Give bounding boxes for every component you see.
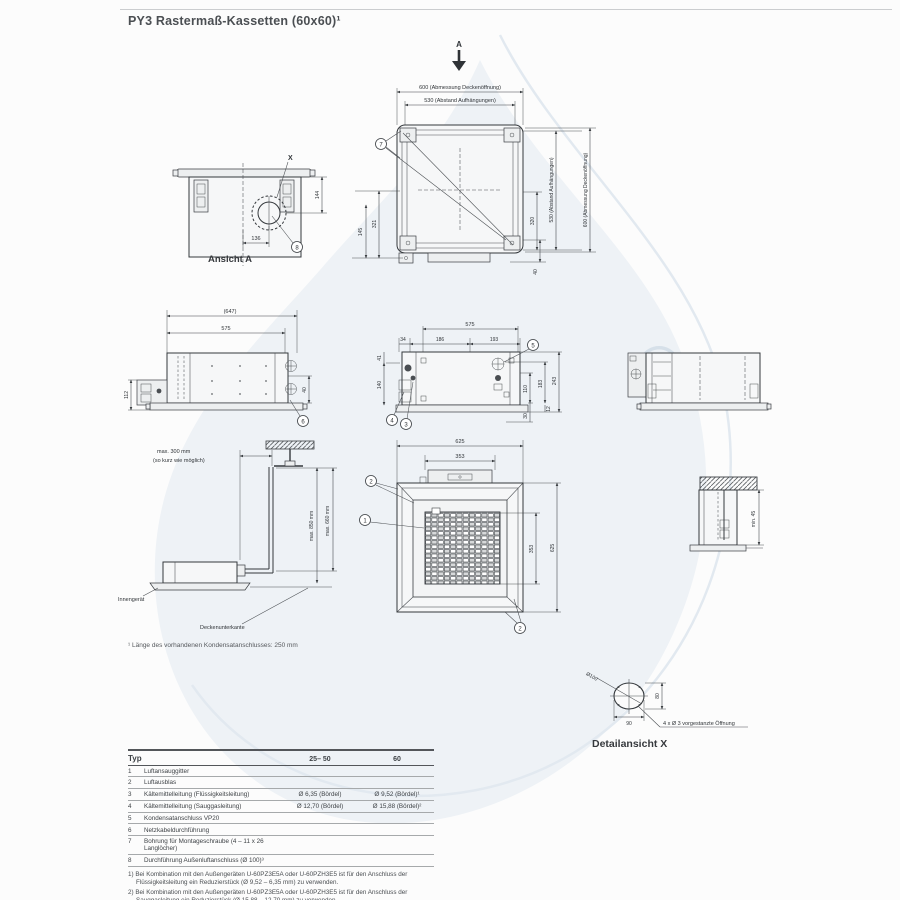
dim-353-top: 353 xyxy=(455,454,464,460)
dim-12: 12 xyxy=(546,406,552,412)
header-60: 60 xyxy=(360,756,434,763)
dim-186: 186 xyxy=(436,337,445,343)
section-arrow-a: A xyxy=(452,40,466,71)
dim-min-45: min. 45 xyxy=(751,511,757,528)
dim-647: (647) xyxy=(224,309,237,315)
dim-80: 80 xyxy=(655,693,661,699)
ansicht-a-drawing: X 136 144 8 Ansicht A xyxy=(173,155,327,266)
dim-625-right: 625 xyxy=(550,544,556,553)
row-number: 6 xyxy=(128,827,144,834)
detail-x-marker: X xyxy=(288,155,293,162)
dim-575-center: 575 xyxy=(465,322,474,328)
row-label: Durchführung Außenluftanschluss (Ø 100)³ xyxy=(144,857,280,864)
row-value-25-50: Ø 6,35 (Bördel) xyxy=(280,791,360,798)
dim-136: 136 xyxy=(251,236,260,242)
label-innengeraet: Innengerät xyxy=(118,597,145,603)
side-view-left-drawing: (647) 575 112 40 6 xyxy=(124,309,312,427)
dim-243: 243 xyxy=(552,377,558,386)
header-25-50: 25– 50 xyxy=(280,756,360,763)
table-row: 6Netzkabeldurchführung xyxy=(128,824,434,836)
side-view-center-drawing: 575 34 186 193 5 4 xyxy=(377,322,562,430)
detail-x-caption: Detailansicht X xyxy=(592,738,667,750)
dim-112: 112 xyxy=(124,391,130,399)
row-number: 2 xyxy=(128,779,144,786)
row-number: 1 xyxy=(128,768,144,775)
row-value-60: Ø 9,52 (Bördel)¹ xyxy=(360,791,434,798)
table-footnotes: 1) Bei Kombination mit den Außengeräten … xyxy=(128,871,434,900)
detail-x-note: 4 x Ø 3 vorgestanzte Öffnung xyxy=(663,720,735,727)
row-number: 7 xyxy=(128,838,144,852)
row-label: Kältemittelleitung (Sauggasleitung) xyxy=(144,803,280,810)
header-typ: Typ xyxy=(128,754,280,763)
dim-183: 183 xyxy=(538,380,544,389)
footnote-2: 2) Bei Kombination mit den Außengeräten … xyxy=(128,889,434,900)
table-row: 8Durchführung Außenluftanschluss (Ø 100)… xyxy=(128,855,434,867)
ceiling-section-drawing: min. 45 xyxy=(690,477,764,551)
dim-625-top: 625 xyxy=(455,439,464,445)
dim-600-top: 600 (Abmessung Deckenöffnung) xyxy=(419,85,501,91)
row-value-25-50: Ø 12,70 (Bördel) xyxy=(280,803,360,810)
dim-40-bottom: 40 xyxy=(533,269,539,275)
dim-600-right: 600 (Abmessung Deckenöffnung) xyxy=(583,152,589,227)
dim-575-left: 575 xyxy=(221,326,230,332)
dim-140: 140 xyxy=(377,381,383,390)
condensate-footnote: ¹ Länge des vorhandenen Kondensatanschlu… xyxy=(128,642,298,649)
table-row: 4Kältemittelleitung (Sauggasleitung) Ø 1… xyxy=(128,801,434,813)
dim-max-660: max. 660 mm xyxy=(325,506,331,536)
table-row: 3Kältemittelleitung (Flüssigkeitsleitung… xyxy=(128,789,434,801)
row-number: 3 xyxy=(128,791,144,798)
dim-145-left: 145 xyxy=(358,228,364,237)
dim-diameter-100: Ø100 xyxy=(585,671,599,682)
ansicht-a-caption: Ansicht A xyxy=(208,254,252,265)
side-view-right-drawing xyxy=(628,353,771,410)
dim-320-right: 320 xyxy=(530,217,536,226)
row-number: 8 xyxy=(128,857,144,864)
row-number: 5 xyxy=(128,815,144,822)
dim-110: 110 xyxy=(523,385,529,393)
table-row: 7Bohrung für Montageschraube (4 – 11 x 2… xyxy=(128,836,434,855)
section-arrow-label: A xyxy=(456,40,462,49)
row-number: 4 xyxy=(128,803,144,810)
drain-note-2: (so kurz wie möglich) xyxy=(153,458,205,464)
type-table: Typ 25– 50 60 1Luftansauggitter 2Luftaus… xyxy=(128,749,434,900)
table-row: 5Kondensatanschluss VP20 xyxy=(128,813,434,825)
dim-530-top: 530 (Abstand Aufhängungen) xyxy=(424,98,496,104)
row-label: Kältemittelleitung (Flüssigkeitsleitung) xyxy=(144,791,280,798)
dim-144: 144 xyxy=(315,191,321,200)
table-header-row: Typ 25– 50 60 xyxy=(128,749,434,766)
dim-max-850: max. 850 mm xyxy=(309,511,315,541)
dim-30: 30 xyxy=(523,413,529,419)
row-label: Netzkabeldurchführung xyxy=(144,827,280,834)
dim-34: 34 xyxy=(400,337,406,343)
drain-diagram: max. 300 mm (so kurz wie möglich) max. 8… xyxy=(118,441,337,631)
dim-530-right: 530 (Abstand Aufhängungen) xyxy=(549,157,555,222)
detail-x-drawing: Ø100 80 90 4 x Ø 3 vorgestanzte Öffnung … xyxy=(585,671,748,750)
datasheet-page: ® PY3 Rastermaß-Kassetten (60x60)¹ A xyxy=(0,0,900,900)
table-row: 1Luftansauggitter xyxy=(128,766,434,778)
dim-321-left: 321 xyxy=(372,220,378,229)
dim-353-right: 353 xyxy=(529,545,535,554)
dim-90: 90 xyxy=(626,721,632,727)
plan-view-drawing: 600 (Abmessung Deckenöffnung) 530 (Absta… xyxy=(352,85,596,275)
panel-view-drawing: 625 353 2 1 2 xyxy=(360,439,562,634)
table-row: 2Luftausblas xyxy=(128,777,434,789)
row-label: Kondensatanschluss VP20 xyxy=(144,815,280,822)
dim-193: 193 xyxy=(490,337,499,343)
dim-40-left-view: 40 xyxy=(302,387,308,393)
row-label: Luftansauggitter xyxy=(144,768,280,775)
dim-41: 41 xyxy=(377,355,383,361)
row-value-60: Ø 15,88 (Bördel)² xyxy=(360,803,434,810)
row-label: Bohrung für Montageschraube (4 – 11 x 26… xyxy=(144,838,280,852)
footnote-1: 1) Bei Kombination mit den Außengeräten … xyxy=(128,871,434,888)
label-deckenunterkante: Deckenunterkante xyxy=(200,625,245,631)
row-label: Luftausblas xyxy=(144,779,280,786)
drain-note-1: max. 300 mm xyxy=(157,449,191,455)
